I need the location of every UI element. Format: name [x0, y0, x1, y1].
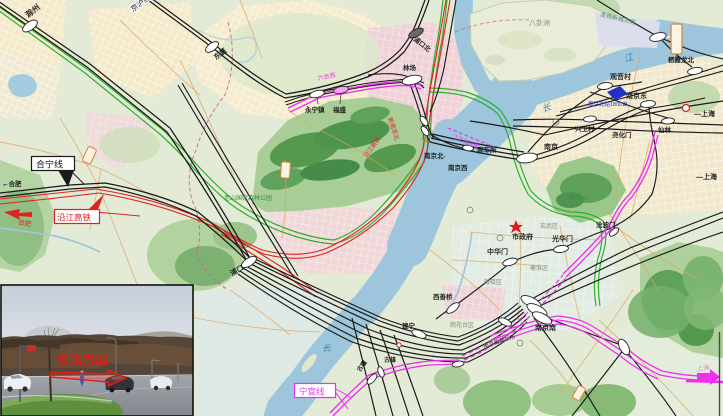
svg-text:南京北·: 南京北· — [424, 151, 446, 160]
svg-text:观音村: 观音村 — [610, 72, 631, 81]
svg-text:南京北站1800亩: 南京北站1800亩 — [588, 100, 628, 108]
svg-text:光华门: 光华门 — [552, 234, 573, 243]
svg-text:南京东: 南京东 — [626, 91, 647, 100]
svg-text:尧化门: 尧化门 — [612, 130, 632, 139]
svg-text:沧波门: 沧波门 — [596, 220, 616, 229]
svg-text:仙林: 仙林 — [658, 125, 672, 134]
svg-text:栖霞龙北: 栖霞龙北 — [668, 55, 695, 64]
svg-text:紫金山: 紫金山 — [570, 193, 588, 201]
svg-text:鼓楼区: 鼓楼区 — [484, 278, 502, 286]
svg-text:中华门: 中华门 — [487, 247, 508, 256]
svg-text:永宁镇: 永宁镇 — [305, 105, 325, 114]
svg-text:客车所: 客车所 — [477, 145, 497, 154]
svg-text:福盛: 福盛 — [333, 105, 347, 114]
svg-text:建宁: 建宁 — [402, 321, 416, 330]
svg-text:南京: 南京 — [544, 142, 558, 151]
svg-text:雨花台区: 雨花台区 — [450, 321, 474, 329]
svg-text:市政府: 市政府 — [512, 232, 533, 241]
svg-text:—上海: —上海 — [694, 109, 715, 118]
svg-text:古雄: 古雄 — [384, 356, 396, 364]
svg-text:南京西: 南京西 — [448, 163, 468, 172]
svg-text:←合肥: ←合肥 — [2, 179, 22, 188]
svg-text:沿江高铁: 沿江高铁 — [57, 213, 92, 223]
svg-text:西善桥: 西善桥 — [433, 292, 453, 301]
svg-text:玄武区: 玄武区 — [540, 222, 558, 230]
svg-text:老山国家森林公园: 老山国家森林公园 — [224, 194, 272, 202]
svg-text:宁宣线: 宁宣线 — [299, 387, 325, 397]
svg-text:—上海: —上海 — [696, 172, 717, 181]
svg-text:长: 长 — [322, 343, 332, 353]
svg-text:南京南: 南京南 — [535, 323, 556, 332]
svg-text:合宁线: 合宁线 — [36, 159, 63, 170]
svg-text:秦淮区: 秦淮区 — [530, 264, 548, 272]
svg-text:兴卫村: 兴卫村 — [575, 124, 595, 133]
svg-text:八卦洲: 八卦洲 — [529, 18, 550, 27]
svg-text:林场: 林场 — [403, 63, 417, 72]
